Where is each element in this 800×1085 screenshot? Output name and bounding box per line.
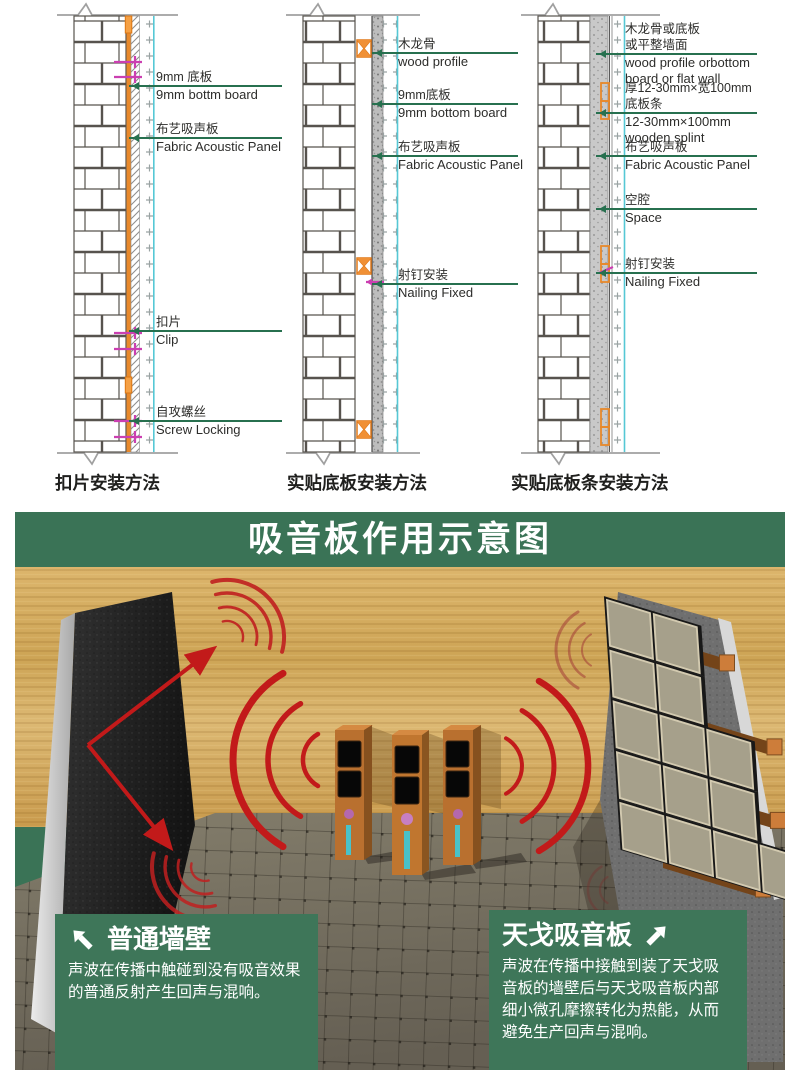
pointer-line — [372, 283, 518, 285]
break-line-bottom — [521, 453, 660, 464]
diagram-label: 空腔 Space — [596, 192, 757, 226]
break-line-top — [286, 4, 420, 15]
info-box-plain-wall: 普通墙壁 声波在传播中触碰到没有吸音效果的普通反射产生回声与混响。 — [55, 914, 318, 1070]
diagram-label: 布艺吸声板 Fabric Acoustic Panel — [372, 139, 518, 173]
diagram-glued-board-method — [286, 4, 420, 464]
brick-wall — [538, 16, 590, 452]
arrow-up-right-icon — [641, 920, 671, 950]
pointer-line — [129, 137, 282, 139]
info-box-body: 声波在传播中触碰到没有吸音效果的普通反射产生回声与混响。 — [68, 960, 305, 1004]
break-line-bottom — [286, 453, 420, 464]
break-line-bottom — [57, 453, 178, 464]
scene-title: 吸音板作用示意图 — [15, 512, 785, 567]
illustration-section: 吸音板作用示意图 — [15, 512, 785, 1070]
diagram-label: 厚12-30mm×宽100mm 底板条 12-30mm×100mm wooden… — [596, 80, 757, 146]
info-box-title: 天戈吸音板 — [502, 919, 632, 951]
diagram-caption: 扣片安装方法 — [55, 470, 160, 495]
diagram-caption: 实贴底板条安装方法 — [511, 470, 669, 495]
speaker — [392, 730, 429, 875]
diagram-label: 射钉安装 Nailing Fixed — [596, 256, 757, 290]
pointer-line — [596, 272, 757, 274]
pointer-line — [596, 53, 757, 55]
acoustic-panel-layer — [383, 16, 397, 452]
bottom-board-layer — [373, 16, 384, 452]
diagram-label: 布艺吸声板 Fabric Acoustic Panel — [129, 121, 282, 155]
pointer-line — [129, 85, 282, 87]
pointer-line — [372, 155, 518, 157]
pointer-line — [372, 52, 518, 54]
info-box-acoustic-panel: 天戈吸音板 声波在传播中接触到装了天戈吸音板的墙壁后与天戈吸音板内部细小微孔摩擦… — [489, 910, 747, 1070]
info-box-title: 普通墙壁 — [107, 923, 211, 955]
pointer-line — [596, 112, 757, 114]
brick-wall — [303, 16, 355, 452]
pointer-line — [596, 208, 757, 210]
wood-block — [125, 377, 132, 393]
pointer-line — [372, 103, 518, 105]
diagram-label: 9mm底板 9mm bottom board — [372, 87, 518, 121]
installation-diagrams-section: 9mm 底板 9mm bottm board 布艺吸声板 Fabric Acou… — [0, 0, 800, 505]
wood-profile-symbols — [357, 40, 371, 438]
pointer-line — [596, 155, 757, 157]
arrow-up-left-icon — [68, 924, 98, 954]
diagram-caption: 实贴底板安装方法 — [287, 470, 427, 495]
diagram-label: 木龙骨 wood profile — [372, 36, 518, 70]
diagram-label: 木龙骨或底板 或平整墙面 wood profile orbottom board… — [596, 21, 757, 87]
diagram-label: 9mm 底板 9mm bottm board — [129, 69, 282, 103]
break-line-top — [57, 4, 178, 15]
info-box-body: 声波在传播中接触到装了天戈吸音板的墙壁后与天戈吸音板内部细小微孔摩擦转化为热能，… — [502, 956, 734, 1044]
pointer-line — [129, 330, 282, 332]
diagram-label: 布艺吸声板 Fabric Acoustic Panel — [596, 139, 757, 173]
wood-block — [125, 16, 132, 33]
diagram-label: 扣片 Clip — [129, 314, 282, 348]
pointer-line — [129, 420, 282, 422]
brick-wall — [74, 16, 126, 452]
diagram-label: 自攻螺丝 Screw Locking — [129, 404, 282, 438]
speaker — [443, 725, 481, 865]
diagram-label: 射钉安装 Nailing Fixed — [372, 267, 518, 301]
page: 9mm 底板 9mm bottm board 布艺吸声板 Fabric Acou… — [0, 0, 800, 1085]
break-line-top — [521, 4, 660, 15]
speaker — [335, 725, 373, 860]
